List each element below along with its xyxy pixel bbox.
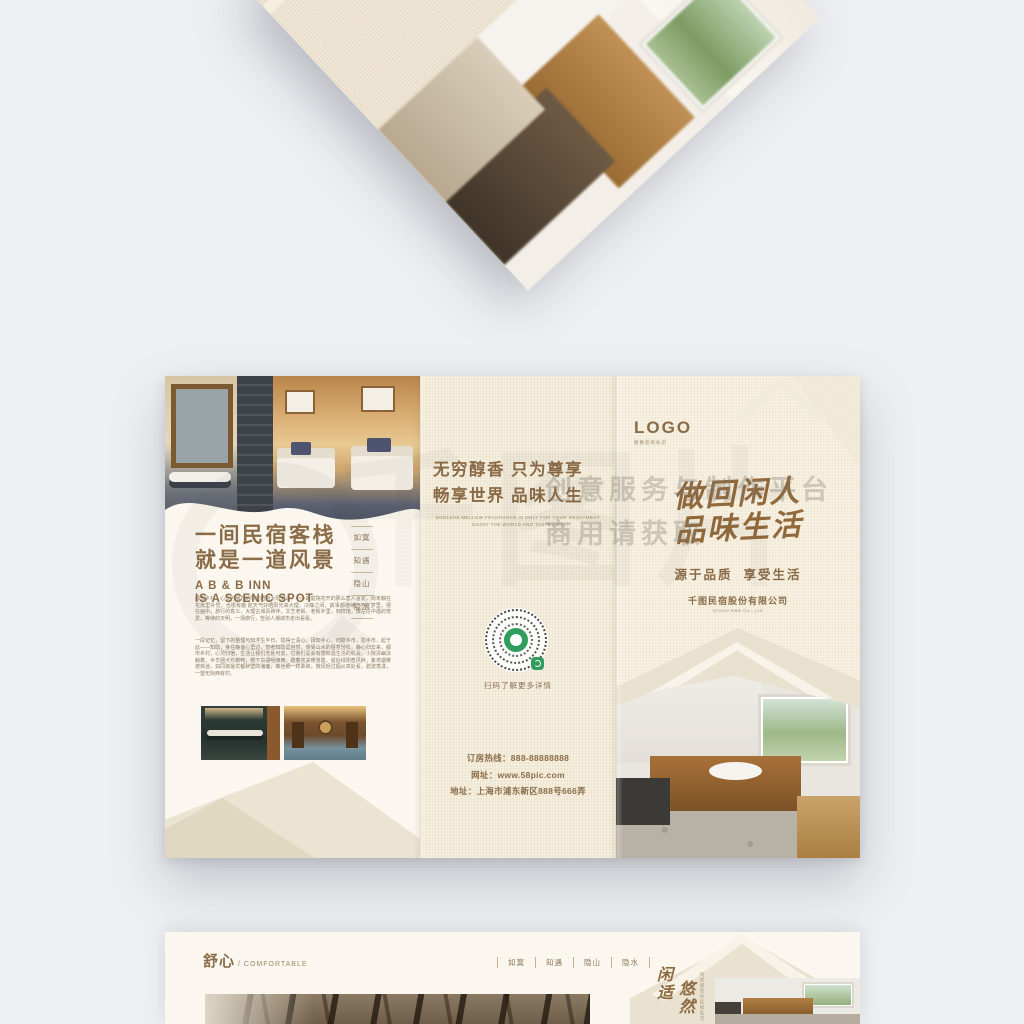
photo-counter <box>207 730 263 736</box>
cover-interior-photo <box>616 676 860 858</box>
section-title: 舒心 <box>203 953 235 970</box>
watermark-text-line2: 商用请获取 <box>545 512 705 551</box>
calligraphy-side-note: 闲适悠然的民宿生活 <box>699 972 705 1022</box>
photo-light-glow <box>205 708 263 720</box>
qr-center-logo <box>504 628 528 652</box>
nav-label: 隐山 <box>573 957 611 968</box>
hallway-thumbnail-photo <box>284 706 366 760</box>
contact-website: 网址：www.58pic.com <box>420 767 616 784</box>
room-interior-photo <box>715 978 860 1024</box>
qr-brand-badge <box>531 657 544 670</box>
photo-wood-step <box>797 796 860 858</box>
photo-door <box>292 722 304 748</box>
qr-caption: 扫码了解更多详情 <box>420 680 616 691</box>
photo-white-drape <box>205 994 315 1024</box>
section-title-en: / COMFORTABLE <box>238 961 308 968</box>
nav-label: 知遇 <box>535 957 573 968</box>
nav-label: 如寞 <box>497 957 535 968</box>
photo-window <box>758 694 852 766</box>
photo-mirror <box>171 384 233 468</box>
photo-window-glass <box>763 699 847 761</box>
folded-brochure-photo <box>255 0 820 291</box>
section-title-block: 舒心/ COMFORTABLE <box>203 950 308 971</box>
company-name-en: Qiantu B&B Co., Ltd <box>616 608 860 613</box>
qr-code-icon <box>484 608 548 672</box>
contact-address: 地址：上海市浦东新区888号666弄 <box>420 783 616 800</box>
calligraphy-column2: 悠然 <box>673 980 697 1016</box>
contact-hotline: 订房热线：888-88888888 <box>420 750 616 767</box>
attic-interior-photo <box>205 994 590 1024</box>
photo-pillow <box>291 442 311 455</box>
logo-text: LOGO <box>634 418 692 438</box>
nav-label: 隐水 <box>611 957 650 968</box>
photo-emblem <box>318 720 333 735</box>
contact-block: 订房热线：888-88888888 网址：www.58pic.com 地址：上海… <box>420 750 616 800</box>
watermark-text-line1: 创意服务与制作平台 <box>545 468 833 507</box>
nav-label-row: 如寞 知遇 隐山 隐水 <box>497 957 650 968</box>
brochure-second-page: 舒心/ COMFORTABLE 如寞 知遇 隐山 隐水 闲适 悠然 闲适悠然的民… <box>165 932 860 1024</box>
photo-wall-art <box>361 386 395 412</box>
photo-door <box>346 722 358 748</box>
calligraphy-vertical: 闲适 悠然 <box>651 966 697 1016</box>
calligraphy-column1: 闲适 <box>651 966 675 1016</box>
photo-dark-counter <box>616 778 670 825</box>
thumbnail-photo-row <box>201 706 366 760</box>
photo-wood-cabinet <box>743 998 813 1014</box>
photo-wood-pillar <box>267 706 280 760</box>
photo-basin <box>709 762 763 780</box>
photo-floor <box>715 1014 860 1024</box>
bathroom-thumbnail-photo <box>201 706 280 760</box>
photo-wall-art <box>285 390 315 414</box>
stage: 一间民宿客栈 就是一道风景 A B & B INN IS A SCENIC SP… <box>0 0 1024 1024</box>
